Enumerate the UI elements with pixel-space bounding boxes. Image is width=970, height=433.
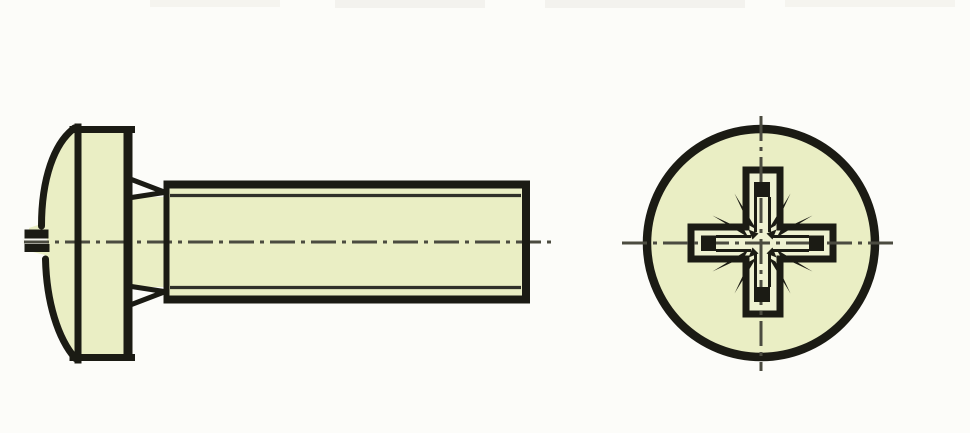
- screw-technical-drawing: [0, 0, 970, 433]
- recess-wing-right: [809, 236, 824, 252]
- end-view: [622, 116, 897, 371]
- recess-slot-upper-edge: [25, 230, 49, 239]
- scan-artifacts: [150, 0, 955, 8]
- recess-slot-lower-edge: [25, 244, 50, 252]
- scan-smudge: [335, 0, 485, 8]
- scan-smudge: [545, 0, 745, 8]
- recess-wing-bottom: [754, 287, 770, 302]
- recess-wing-left: [701, 236, 716, 252]
- scan-smudge: [785, 0, 955, 7]
- thread-runout-lower: [132, 287, 166, 305]
- drawing-canvas: [0, 0, 970, 433]
- scan-smudge: [150, 0, 280, 7]
- thread-runout-upper: [132, 180, 166, 198]
- side-view: [23, 126, 553, 361]
- recess-wing-top: [754, 182, 770, 197]
